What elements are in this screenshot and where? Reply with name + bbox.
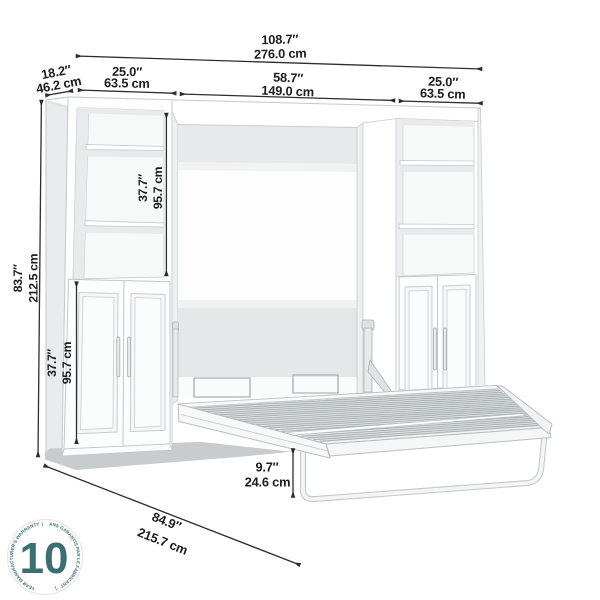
svg-text:63.5 cm: 63.5 cm (104, 75, 150, 91)
svg-text:9.7″: 9.7″ (255, 460, 278, 475)
svg-text:37.7″: 37.7″ (136, 174, 150, 202)
svg-text:276.0 cm: 276.0 cm (254, 45, 307, 61)
svg-text:212.5 cm: 212.5 cm (26, 253, 40, 302)
svg-text:63.5 cm: 63.5 cm (420, 85, 466, 102)
svg-text:149.0 cm: 149.0 cm (261, 83, 314, 100)
svg-text:37.7″: 37.7″ (45, 349, 59, 377)
svg-text:95.7 cm: 95.7 cm (151, 166, 165, 209)
svg-text:83.7″: 83.7″ (11, 264, 25, 292)
svg-text:95.7 cm: 95.7 cm (60, 341, 74, 384)
svg-text:215.7 cm: 215.7 cm (135, 525, 189, 558)
svg-text:10: 10 (20, 534, 69, 583)
svg-text:24.6 cm: 24.6 cm (245, 475, 291, 490)
